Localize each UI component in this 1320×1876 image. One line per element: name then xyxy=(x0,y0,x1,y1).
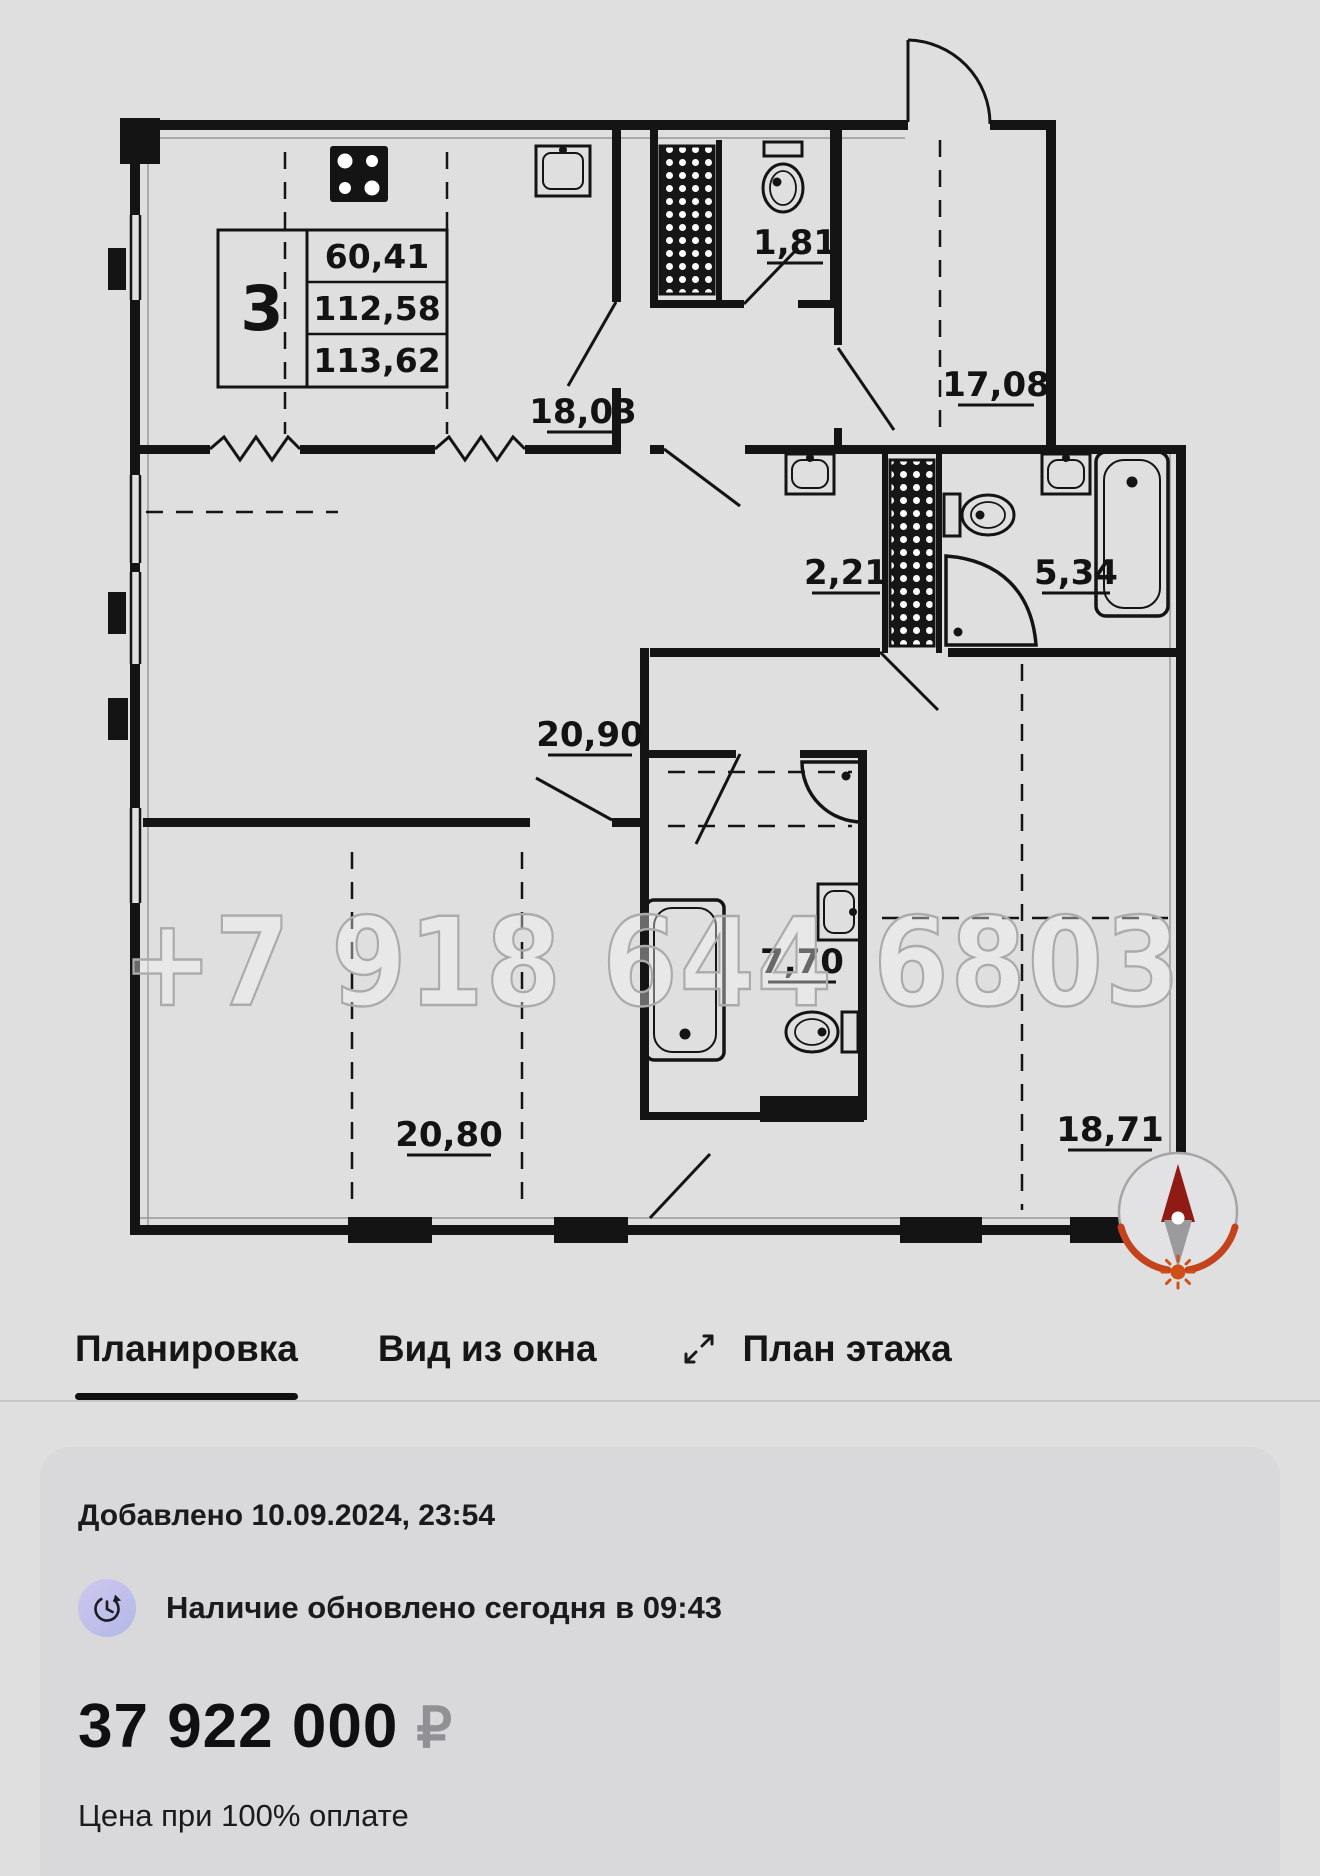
expand-icon xyxy=(681,1331,717,1367)
room-count: 3 xyxy=(240,272,283,345)
room-label-bedroom-bottom-right: 18,71 xyxy=(1056,1110,1164,1150)
living-area: 60,41 xyxy=(325,237,429,276)
clock-refresh-icon xyxy=(78,1579,136,1637)
floor-plan-image[interactable]: 3 60,41 112,58 113,62 xyxy=(0,0,1320,1300)
tab-layout-label: Планировка xyxy=(75,1328,298,1369)
room-label-bathroom-right: 5,34 xyxy=(1034,553,1118,593)
room-label-wc: 1,81 xyxy=(753,223,837,263)
price-note: Цена при 100% оплате xyxy=(78,1798,1242,1834)
availability-text: Наличие обновлено сегодня в 09:43 xyxy=(166,1590,722,1626)
area-without-balcony: 112,58 xyxy=(313,289,440,328)
total-area: 113,62 xyxy=(313,341,440,380)
toilet-icon xyxy=(944,494,1014,536)
tab-bar: Планировка Вид из окна План этажа xyxy=(0,1300,1320,1400)
availability-row: Наличие обновлено сегодня в 09:43 xyxy=(78,1579,1242,1637)
sink-icon xyxy=(1042,454,1090,494)
room-label-closet: 2,21 xyxy=(804,553,888,593)
room-label-hall: 20,90 xyxy=(536,715,644,755)
tab-floor-plan-label: План этажа xyxy=(743,1328,952,1370)
tab-view-from-window[interactable]: Вид из окна xyxy=(378,1328,597,1400)
room-label-bedroom-top-right: 17,08 xyxy=(942,365,1050,405)
compass-icon xyxy=(1119,1153,1237,1288)
vent-shaft xyxy=(660,146,714,294)
toilet-icon xyxy=(763,142,803,212)
apartment-info-table: 3 60,41 112,58 113,62 xyxy=(218,230,447,387)
price-value: 37 922 000 xyxy=(78,1691,398,1762)
ruble-sign: ₽ xyxy=(416,1695,452,1761)
tab-floor-plan[interactable]: План этажа xyxy=(681,1328,952,1400)
details-card: Добавлено 10.09.2024, 23:54 Наличие обно… xyxy=(40,1447,1280,1876)
divider xyxy=(0,1400,1320,1402)
sink-icon xyxy=(536,146,590,196)
sink-icon xyxy=(786,454,834,494)
room-label-bedroom-bottom-left: 20,80 xyxy=(395,1115,503,1155)
vent-shaft xyxy=(890,460,934,646)
added-date: Добавлено 10.09.2024, 23:54 xyxy=(78,1499,1242,1533)
watermark-phone: +7 918 644 6803 xyxy=(122,892,1182,1034)
tab-layout[interactable]: Планировка xyxy=(75,1328,298,1400)
price: 37 922 000 ₽ xyxy=(78,1691,1242,1762)
stove-icon xyxy=(330,146,388,202)
active-tab-underline xyxy=(75,1393,298,1400)
tab-view-from-window-label: Вид из окна xyxy=(378,1328,597,1369)
shower-icon xyxy=(946,556,1036,645)
room-label-kitchen: 18,03 xyxy=(529,392,637,432)
